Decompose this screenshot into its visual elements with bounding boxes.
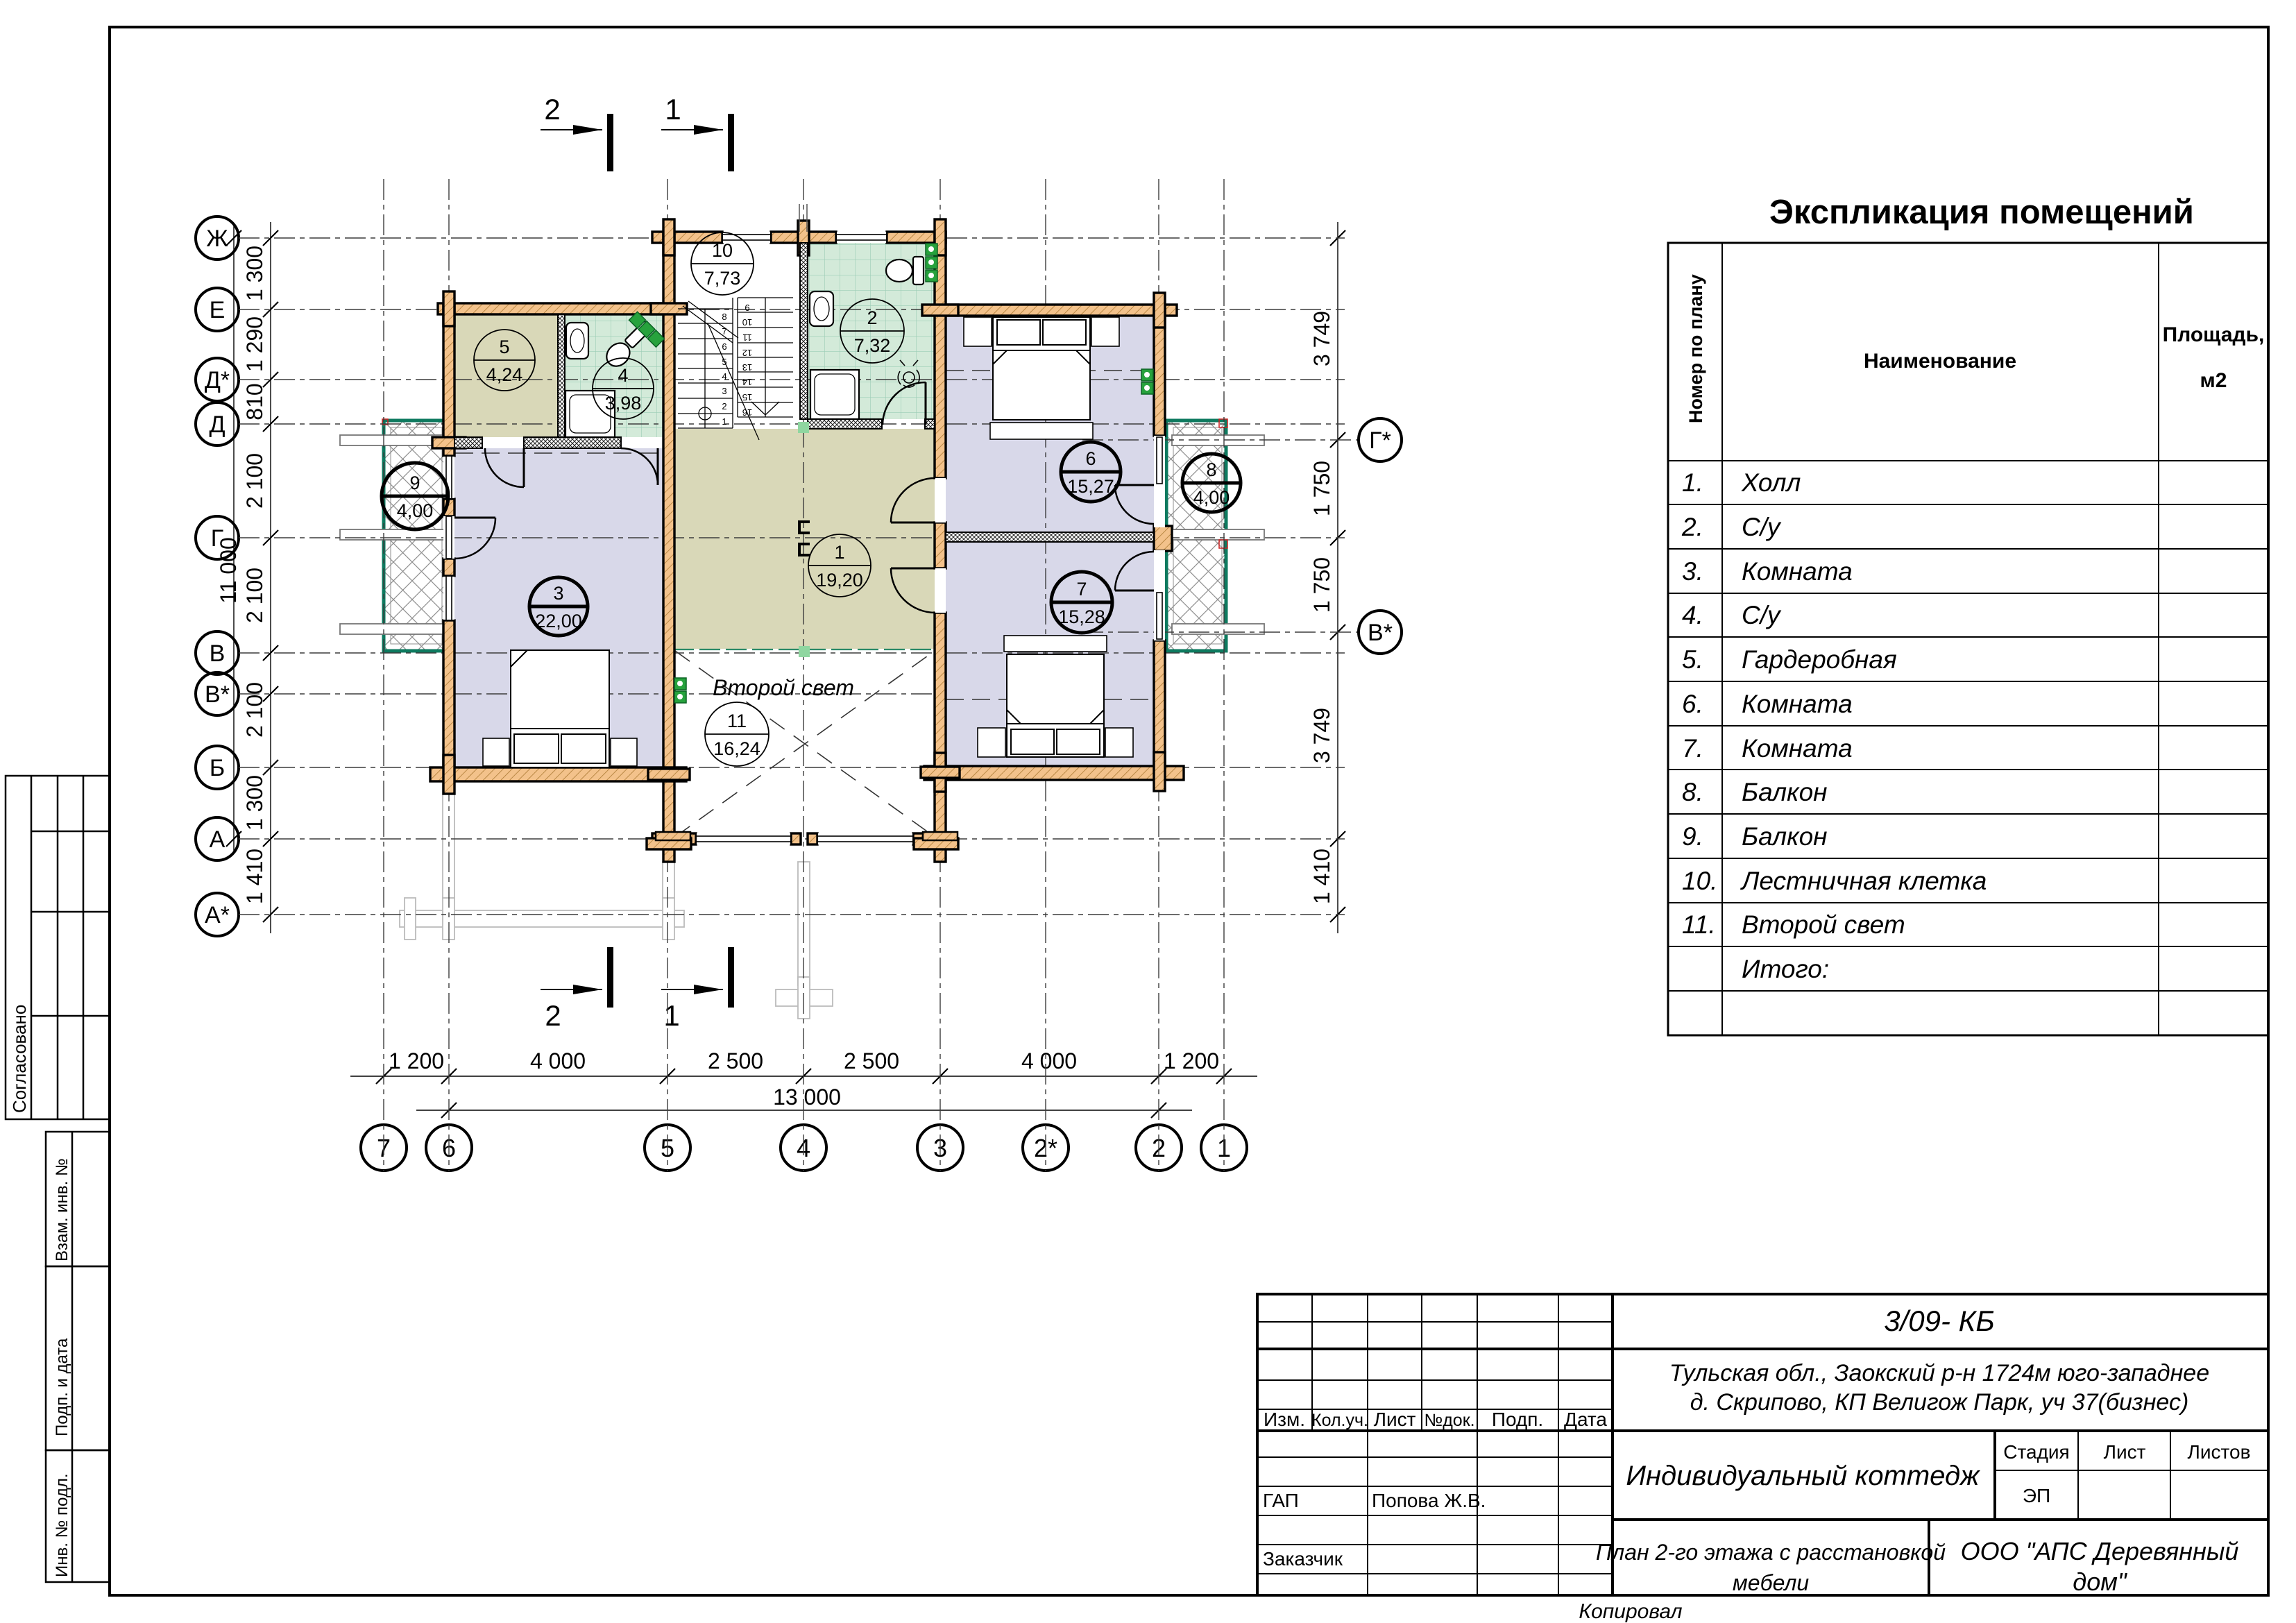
svg-text:ГАП: ГАП xyxy=(1263,1490,1299,1511)
svg-text:7: 7 xyxy=(1076,579,1087,600)
svg-text:22,00: 22,00 xyxy=(535,611,582,631)
svg-text:Площадь,: Площадь, xyxy=(2163,323,2265,346)
svg-text:2: 2 xyxy=(722,401,726,411)
svg-text:Стадия: Стадия xyxy=(2003,1441,2069,1463)
svg-text:6: 6 xyxy=(1085,448,1096,469)
svg-text:2: 2 xyxy=(544,93,560,126)
svg-text:19,20: 19,20 xyxy=(816,570,863,590)
svg-text:д. Скрипово, КП Велигож Парк,: д. Скрипово, КП Велигож Парк, уч 37(бизн… xyxy=(1690,1389,2189,1416)
svg-text:м2: м2 xyxy=(2200,369,2227,392)
svg-text:Г*: Г* xyxy=(1369,427,1391,454)
svg-text:2.: 2. xyxy=(1681,513,1703,541)
svg-text:4 000: 4 000 xyxy=(530,1048,586,1073)
svg-text:А*: А* xyxy=(205,902,230,928)
svg-text:8.: 8. xyxy=(1682,778,1703,806)
svg-text:мебели: мебели xyxy=(1733,1570,1810,1595)
svg-text:В*: В* xyxy=(1368,620,1393,646)
svg-text:дом": дом" xyxy=(2073,1567,2128,1596)
svg-text:7: 7 xyxy=(722,326,726,337)
svg-text:Листов: Листов xyxy=(2188,1441,2251,1463)
svg-text:8: 8 xyxy=(722,312,726,322)
svg-text:7,32: 7,32 xyxy=(854,335,891,356)
svg-text:Изм.: Изм. xyxy=(1264,1409,1305,1430)
svg-text:1 300: 1 300 xyxy=(242,246,267,301)
svg-text:С/у: С/у xyxy=(1742,513,1782,541)
svg-text:11.: 11. xyxy=(1682,910,1716,939)
svg-text:Лист: Лист xyxy=(1374,1409,1416,1430)
svg-text:10: 10 xyxy=(712,240,733,261)
svg-text:10.: 10. xyxy=(1682,867,1717,895)
svg-text:Балкон: Балкон xyxy=(1742,822,1828,851)
svg-text:Тульская обл., Заокский р-н 17: Тульская обл., Заокский р-н 1724м юго-за… xyxy=(1669,1360,2209,1386)
svg-text:В*: В* xyxy=(205,681,230,708)
svg-text:1 750: 1 750 xyxy=(1309,461,1334,516)
svg-text:4: 4 xyxy=(722,371,726,382)
svg-text:Подп.: Подп. xyxy=(1492,1409,1543,1430)
svg-text:1 300: 1 300 xyxy=(242,775,267,831)
svg-text:А: А xyxy=(210,826,226,853)
svg-text:15: 15 xyxy=(742,392,752,402)
svg-text:Заказчик: Заказчик xyxy=(1263,1548,1343,1570)
svg-text:Попова Ж.В.: Попова Ж.В. xyxy=(1372,1490,1486,1511)
svg-text:Холл: Холл xyxy=(1741,468,1801,497)
svg-text:3/09- КБ: 3/09- КБ xyxy=(1884,1305,1995,1337)
svg-text:Комната: Комната xyxy=(1742,557,1853,586)
svg-text:10: 10 xyxy=(742,317,752,328)
svg-text:Лист: Лист xyxy=(2104,1441,2146,1463)
svg-text:Копировал: Копировал xyxy=(1579,1600,1682,1623)
svg-text:С/у: С/у xyxy=(1742,601,1782,629)
svg-text:1 750: 1 750 xyxy=(1309,557,1334,613)
svg-text:6.: 6. xyxy=(1682,690,1703,718)
svg-text:4,00: 4,00 xyxy=(397,500,434,521)
svg-text:5: 5 xyxy=(499,337,509,357)
svg-text:Ж: Ж xyxy=(206,226,228,252)
svg-text:Б: Б xyxy=(210,755,225,781)
svg-text:Дата: Дата xyxy=(1564,1409,1607,1430)
svg-text:В: В xyxy=(210,640,226,667)
svg-text:Е: Е xyxy=(210,297,226,323)
svg-text:1 200: 1 200 xyxy=(389,1048,444,1073)
svg-text:5.: 5. xyxy=(1682,645,1703,674)
svg-text:3: 3 xyxy=(553,583,563,604)
svg-text:3: 3 xyxy=(722,386,726,396)
svg-text:12: 12 xyxy=(742,348,752,358)
svg-text:15,28: 15,28 xyxy=(1058,606,1105,627)
svg-text:16: 16 xyxy=(742,407,752,418)
svg-text:1 200: 1 200 xyxy=(1164,1048,1219,1073)
svg-text:4 000: 4 000 xyxy=(1021,1048,1077,1073)
svg-text:Комната: Комната xyxy=(1742,734,1853,763)
svg-text:15,27: 15,27 xyxy=(1067,476,1114,497)
svg-text:Номер по плану: Номер по плану xyxy=(1685,274,1706,423)
svg-text:1: 1 xyxy=(663,999,679,1032)
svg-text:№док.: №док. xyxy=(1424,1411,1474,1430)
svg-text:4,00: 4,00 xyxy=(1193,487,1230,508)
svg-text:ООО "АПС Деревянный: ООО "АПС Деревянный xyxy=(1961,1537,2239,1565)
svg-text:2: 2 xyxy=(867,307,877,328)
svg-text:3,98: 3,98 xyxy=(605,393,642,414)
svg-text:План 2-го этажа с расстановкой: План 2-го этажа с расстановкой xyxy=(1596,1540,1946,1565)
svg-text:Второй свет: Второй свет xyxy=(713,675,854,700)
svg-text:5: 5 xyxy=(722,357,726,367)
svg-text:Наименование: Наименование xyxy=(1864,350,2016,373)
svg-text:9: 9 xyxy=(745,303,749,313)
svg-text:2 100: 2 100 xyxy=(242,682,267,738)
svg-text:Второй свет: Второй свет xyxy=(1742,910,1905,939)
svg-text:11: 11 xyxy=(727,711,747,731)
svg-text:Д: Д xyxy=(209,411,225,438)
svg-text:2: 2 xyxy=(545,999,561,1032)
svg-text:4: 4 xyxy=(618,365,628,386)
svg-text:Подп. и дата: Подп. и дата xyxy=(53,1338,71,1436)
svg-text:7.: 7. xyxy=(1682,734,1703,763)
svg-text:810: 810 xyxy=(242,383,267,420)
svg-text:13: 13 xyxy=(742,362,752,373)
svg-text:Взам. инв. №: Взам. инв. № xyxy=(53,1158,71,1261)
svg-text:3.: 3. xyxy=(1682,557,1703,586)
svg-text:1.: 1. xyxy=(1682,468,1703,497)
svg-text:1: 1 xyxy=(665,93,681,126)
svg-text:Индивидуальный коттедж: Индивидуальный коттедж xyxy=(1626,1461,1980,1491)
svg-text:2 100: 2 100 xyxy=(242,453,267,509)
svg-text:2 500: 2 500 xyxy=(708,1048,763,1073)
svg-text:9: 9 xyxy=(409,473,420,493)
svg-text:13 000: 13 000 xyxy=(773,1085,841,1110)
svg-text:16,24: 16,24 xyxy=(713,738,760,759)
svg-text:Кол.уч.: Кол.уч. xyxy=(1311,1411,1368,1430)
svg-text:7,73: 7,73 xyxy=(704,268,741,289)
svg-text:3 749: 3 749 xyxy=(1309,311,1334,366)
svg-text:11: 11 xyxy=(742,332,752,343)
svg-text:9.: 9. xyxy=(1682,822,1703,851)
svg-text:Д*: Д* xyxy=(205,367,230,393)
svg-text:1 290: 1 290 xyxy=(242,316,267,372)
svg-text:4,24: 4,24 xyxy=(486,364,523,385)
svg-text:Инв. № подл.: Инв. № подл. xyxy=(53,1474,71,1578)
svg-text:2 500: 2 500 xyxy=(844,1048,899,1073)
svg-text:Лестничная клетка: Лестничная клетка xyxy=(1740,867,1987,895)
svg-text:1: 1 xyxy=(722,416,726,427)
svg-text:Экспликация помещений: Экспликация помещений xyxy=(1769,194,2194,231)
svg-text:11 000: 11 000 xyxy=(216,537,241,604)
svg-text:4.: 4. xyxy=(1682,601,1703,629)
svg-text:Итого:: Итого: xyxy=(1742,955,1829,983)
svg-text:6: 6 xyxy=(722,341,726,352)
svg-text:1 410: 1 410 xyxy=(1309,849,1334,904)
svg-text:8: 8 xyxy=(1206,459,1216,480)
svg-text:Балкон: Балкон xyxy=(1742,778,1828,806)
svg-text:ЭП: ЭП xyxy=(2023,1485,2050,1506)
svg-text:3 749: 3 749 xyxy=(1309,708,1334,763)
svg-text:1 410: 1 410 xyxy=(242,849,267,904)
svg-text:1: 1 xyxy=(834,542,844,563)
svg-text:Гардеробная: Гардеробная xyxy=(1742,645,1897,674)
svg-text:Согласовано: Согласовано xyxy=(9,1005,30,1113)
svg-text:Комната: Комната xyxy=(1742,690,1853,718)
svg-text:2 100: 2 100 xyxy=(242,568,267,623)
svg-text:14: 14 xyxy=(742,377,752,387)
